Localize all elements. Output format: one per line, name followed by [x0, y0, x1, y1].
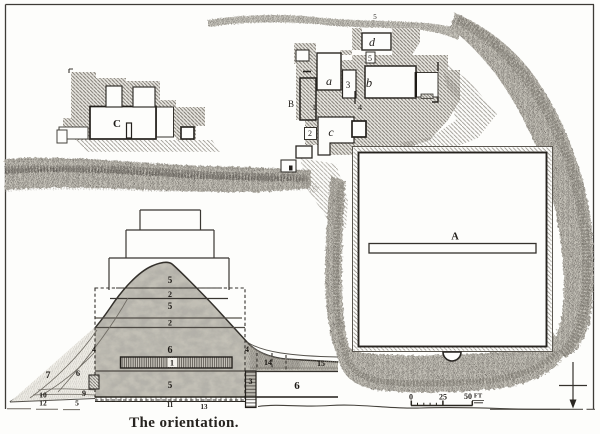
svg-text:B: B	[288, 99, 294, 109]
svg-text:0: 0	[409, 393, 413, 402]
svg-text:4: 4	[245, 345, 249, 354]
svg-text:C: C	[113, 118, 121, 130]
svg-text:4: 4	[358, 103, 362, 112]
svg-text:14: 14	[264, 358, 272, 367]
svg-text:d: d	[369, 35, 376, 49]
svg-text:1: 1	[312, 103, 316, 112]
svg-text:5: 5	[168, 301, 173, 311]
svg-text:13: 13	[201, 403, 209, 411]
svg-text:15: 15	[317, 359, 325, 368]
svg-text:a: a	[326, 74, 332, 88]
svg-text:5: 5	[168, 380, 173, 390]
svg-text:2: 2	[168, 319, 172, 328]
svg-text:9: 9	[82, 389, 86, 398]
svg-text:6: 6	[76, 368, 80, 378]
svg-text:11: 11	[167, 401, 174, 409]
svg-text:2: 2	[308, 129, 312, 138]
svg-text:A: A	[451, 232, 459, 243]
svg-text:1: 1	[170, 359, 174, 368]
svg-text:FT: FT	[474, 393, 483, 400]
svg-text:5: 5	[168, 275, 173, 285]
svg-text:b: b	[366, 76, 372, 90]
svg-text:The orientation.: The orientation.	[129, 415, 239, 431]
svg-text:7: 7	[46, 371, 51, 381]
svg-text:25: 25	[439, 393, 447, 402]
svg-text:50: 50	[464, 392, 472, 401]
svg-text:2: 2	[168, 290, 172, 299]
svg-text:c: c	[328, 125, 334, 139]
svg-text:6: 6	[294, 380, 300, 392]
svg-text:12: 12	[39, 399, 47, 408]
svg-text:5: 5	[368, 54, 372, 63]
svg-text:6: 6	[168, 345, 173, 356]
svg-text:5: 5	[75, 399, 79, 408]
svg-text:3: 3	[249, 377, 253, 386]
svg-text:3: 3	[346, 80, 351, 90]
svg-text:5: 5	[373, 13, 377, 21]
svg-text:4: 4	[92, 345, 96, 354]
